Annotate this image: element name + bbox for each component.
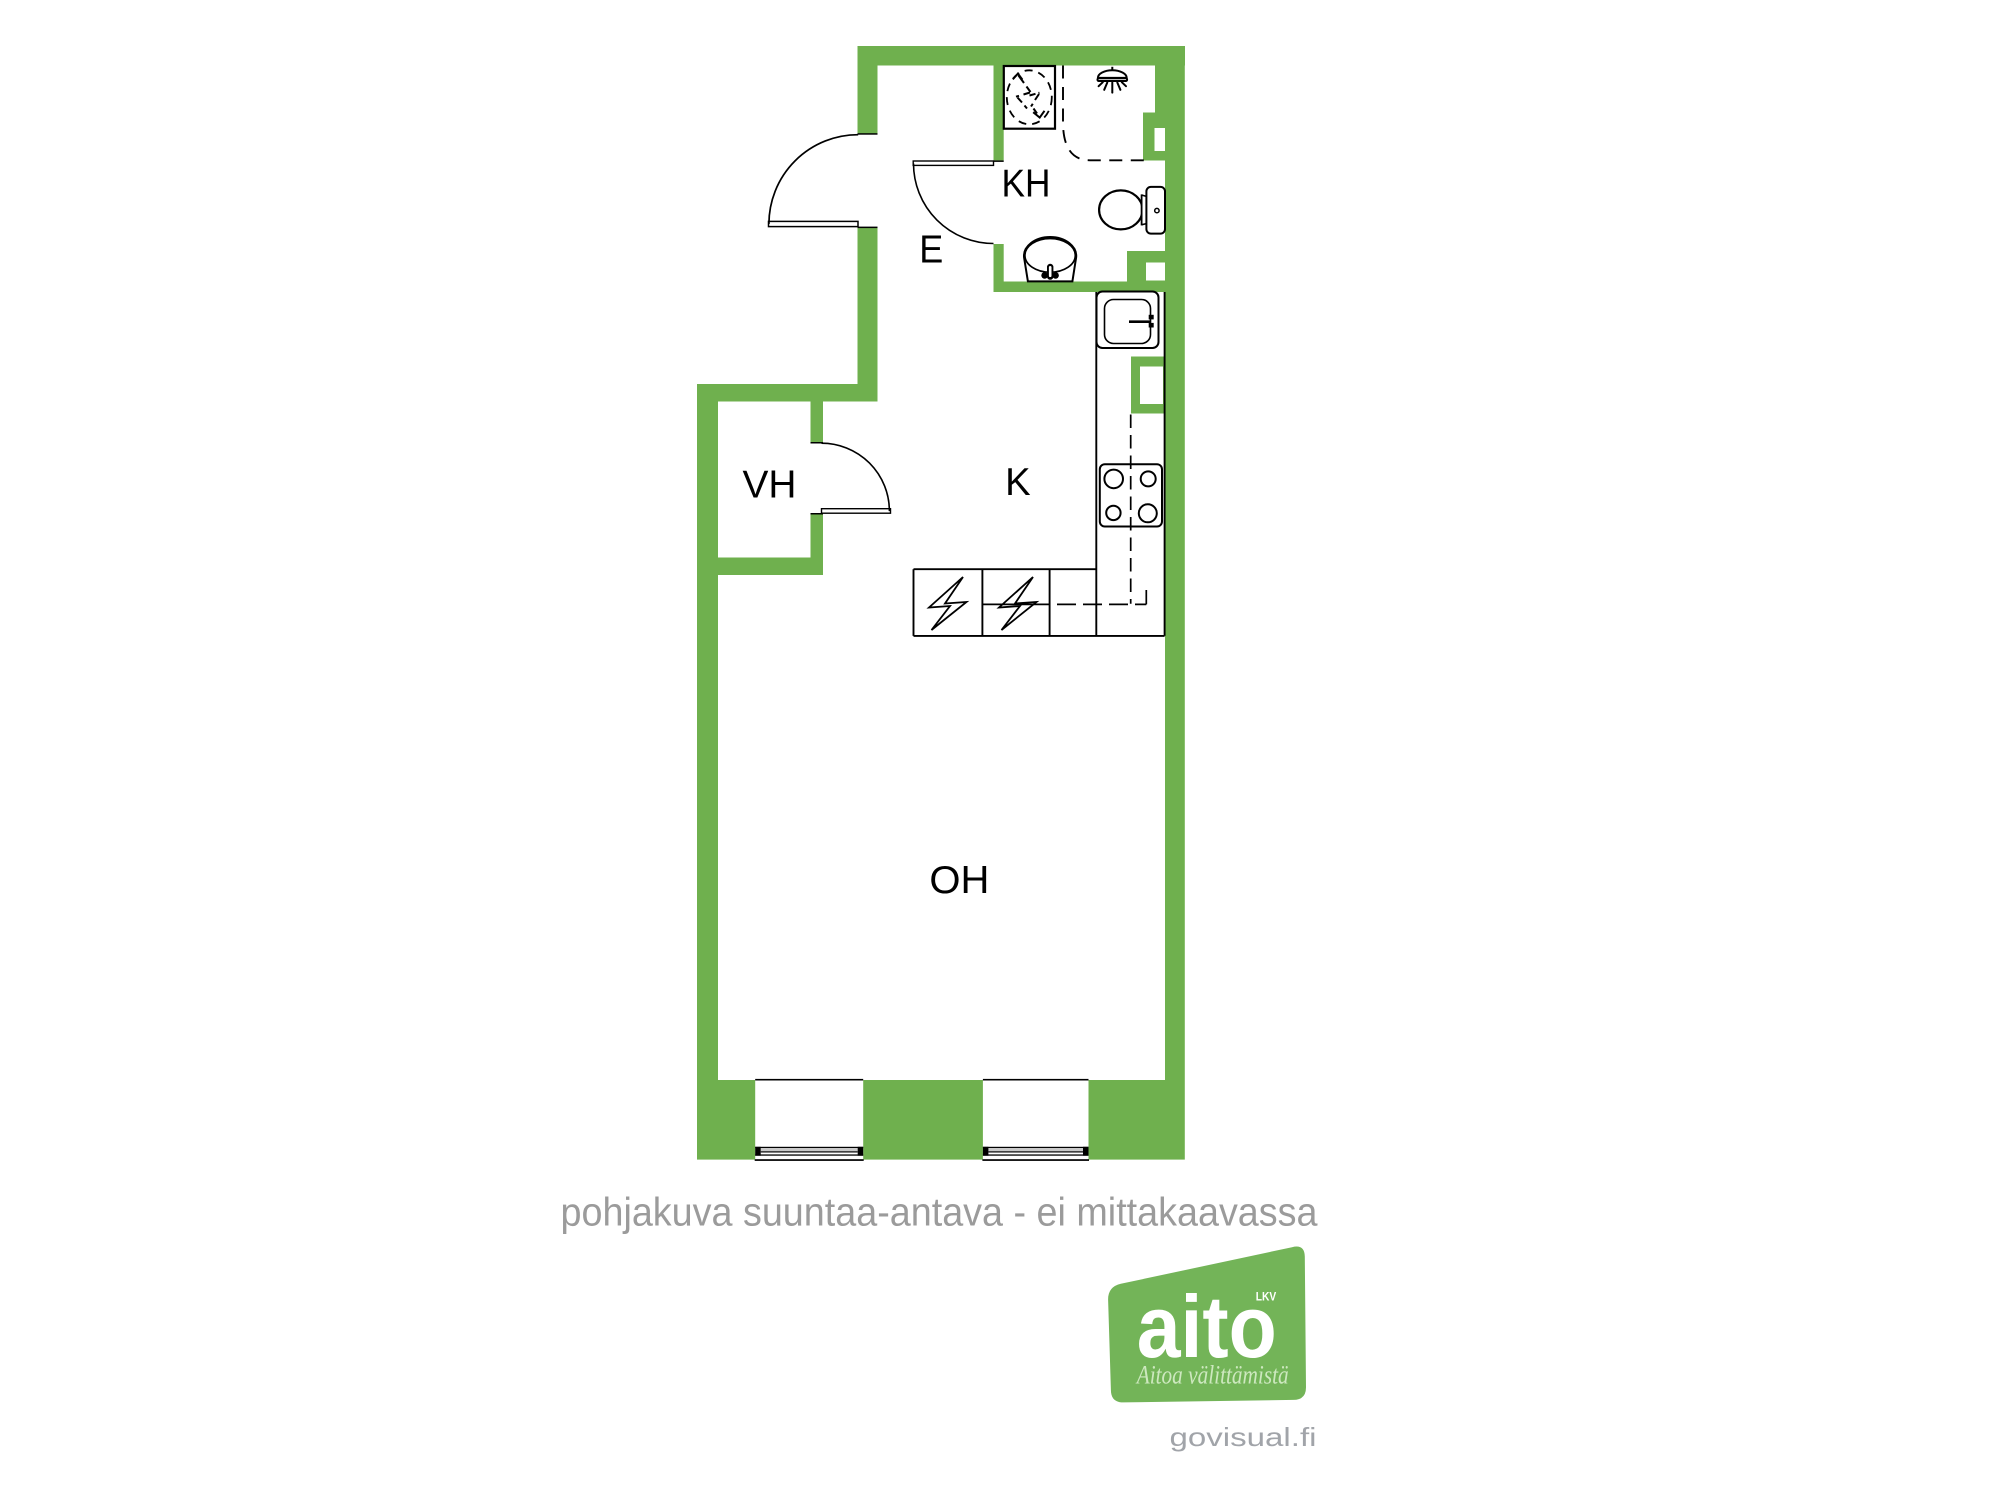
- svg-text:K: K: [1005, 461, 1031, 504]
- svg-text:pohjakuva suuntaa-antava - ei: pohjakuva suuntaa-antava - ei mittakaava…: [561, 1190, 1319, 1234]
- svg-text:Aitoa välittämistä: Aitoa välittämistä: [1135, 1361, 1289, 1390]
- svg-text:govisual.fi: govisual.fi: [1170, 1422, 1317, 1452]
- svg-text:LKV: LKV: [1256, 1292, 1277, 1304]
- svg-text:OH: OH: [929, 859, 989, 902]
- svg-text:VH: VH: [743, 464, 797, 507]
- svg-text:KH: KH: [1002, 162, 1051, 205]
- svg-text:E: E: [919, 228, 943, 271]
